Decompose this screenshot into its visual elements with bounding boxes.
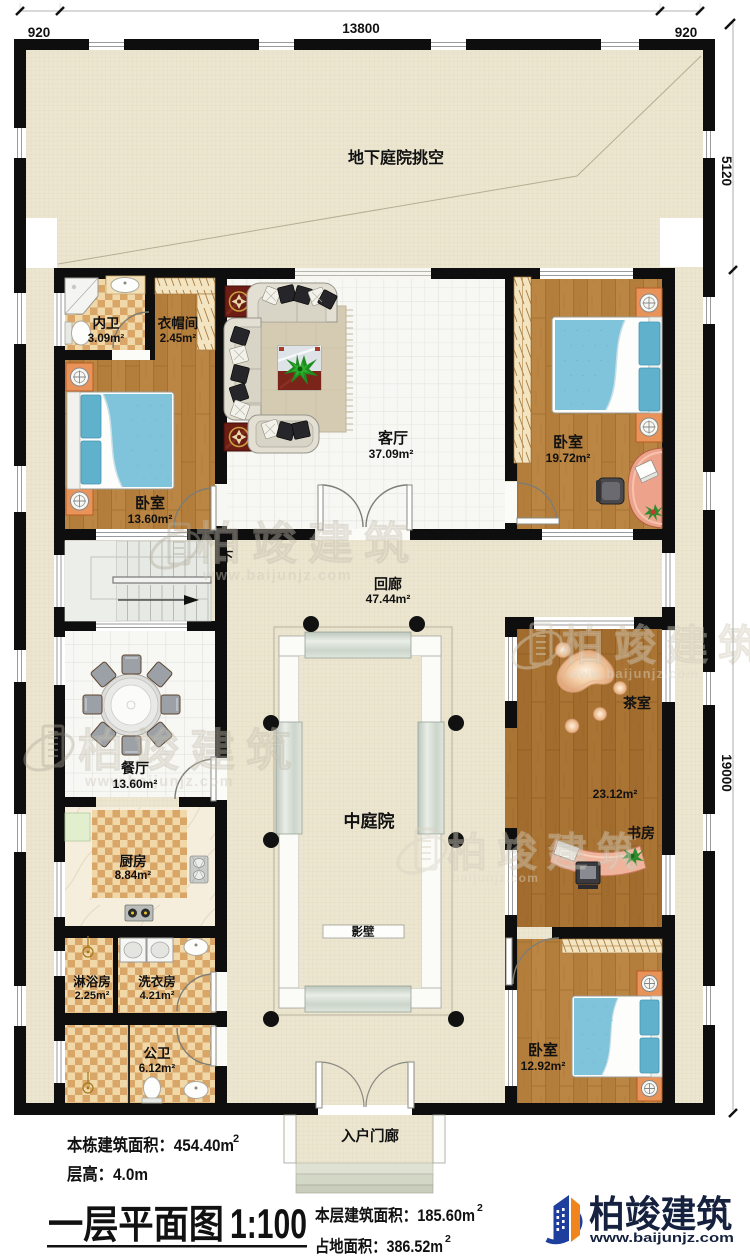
svg-text:卧室: 卧室 <box>135 494 165 512</box>
svg-text:www.baijunjz.com: www.baijunjz.com <box>589 1230 734 1245</box>
svg-text:柏竣建筑: 柏竣建筑 <box>562 622 750 669</box>
svg-text:淋浴房: 淋浴房 <box>73 974 111 989</box>
svg-text:37.09m²: 37.09m² <box>369 447 414 461</box>
svg-text:19000: 19000 <box>719 754 734 792</box>
svg-text:影壁: 影壁 <box>352 925 375 939</box>
svg-text:茶室: 茶室 <box>622 695 651 711</box>
svg-text:入户门廊: 入户门廊 <box>341 1127 399 1145</box>
svg-text:1:100: 1:100 <box>230 1200 307 1247</box>
svg-text:卧室: 卧室 <box>553 433 583 451</box>
svg-text:920: 920 <box>28 25 51 40</box>
svg-text:中庭院: 中庭院 <box>344 811 395 831</box>
svg-text:13800: 13800 <box>342 21 380 36</box>
svg-text:920: 920 <box>675 25 698 40</box>
svg-text:2.25m²: 2.25m² <box>75 990 110 1002</box>
svg-text:23.12m²: 23.12m² <box>593 787 638 801</box>
svg-text:洗衣房: 洗衣房 <box>138 974 176 989</box>
svg-text:4.21m²: 4.21m² <box>140 990 175 1002</box>
svg-text:19.72m²: 19.72m² <box>546 451 591 465</box>
svg-text:47.44m²: 47.44m² <box>366 592 411 606</box>
svg-text:书房: 书房 <box>627 825 655 841</box>
svg-text:13.60m²: 13.60m² <box>128 512 173 526</box>
svg-text:13.60m²: 13.60m² <box>113 777 158 791</box>
svg-text:www.baijunjz.com: www.baijunjz.com <box>202 568 352 584</box>
svg-text:柏竣建筑: 柏竣建筑 <box>447 831 647 875</box>
svg-text:柏竣建筑: 柏竣建筑 <box>589 1193 732 1235</box>
svg-text:公卫: 公卫 <box>144 1046 171 1061</box>
svg-text:餐厅: 餐厅 <box>120 760 149 776</box>
svg-text:5120: 5120 <box>719 156 734 186</box>
svg-text:衣帽间: 衣帽间 <box>158 315 199 331</box>
svg-text:客厅: 客厅 <box>377 429 408 447</box>
svg-text:8.84m²: 8.84m² <box>115 870 152 882</box>
svg-text:6.12m²: 6.12m² <box>139 1063 176 1075</box>
svg-text:3.09m²: 3.09m² <box>88 333 125 345</box>
svg-text:卧室: 卧室 <box>528 1041 558 1059</box>
svg-text:厨房: 厨房 <box>120 853 147 869</box>
svg-text:地下庭院挑空: 地下庭院挑空 <box>348 148 444 167</box>
svg-text:柏竣建筑: 柏竣建筑 <box>78 725 302 776</box>
svg-text:本栋建筑面积：454.40m: 本栋建筑面积：454.40m <box>67 1135 234 1155</box>
svg-text:2.45m²: 2.45m² <box>160 333 197 345</box>
svg-text:回廊: 回廊 <box>374 576 402 592</box>
svg-text:一层平面图: 一层平面图 <box>48 1204 224 1247</box>
svg-text:baijunjz.com: baijunjz.com <box>452 871 539 885</box>
svg-text:占地面积：386.52m: 占地面积：386.52m <box>315 1236 443 1256</box>
svg-text:www.baijunjz.com: www.baijunjz.com <box>567 666 699 681</box>
svg-text:2: 2 <box>477 1202 483 1214</box>
svg-text:层高：4.0m: 层高：4.0m <box>67 1164 148 1184</box>
svg-text:www.baijunjz.com: www.baijunjz.com <box>84 774 234 790</box>
svg-text:2: 2 <box>445 1233 451 1245</box>
svg-text:2: 2 <box>233 1133 239 1145</box>
svg-text:本层建筑面积：185.60m: 本层建筑面积：185.60m <box>315 1205 475 1225</box>
svg-text:内卫: 内卫 <box>93 315 120 331</box>
svg-text:下: 下 <box>221 550 234 564</box>
svg-text:12.92m²: 12.92m² <box>521 1059 566 1073</box>
